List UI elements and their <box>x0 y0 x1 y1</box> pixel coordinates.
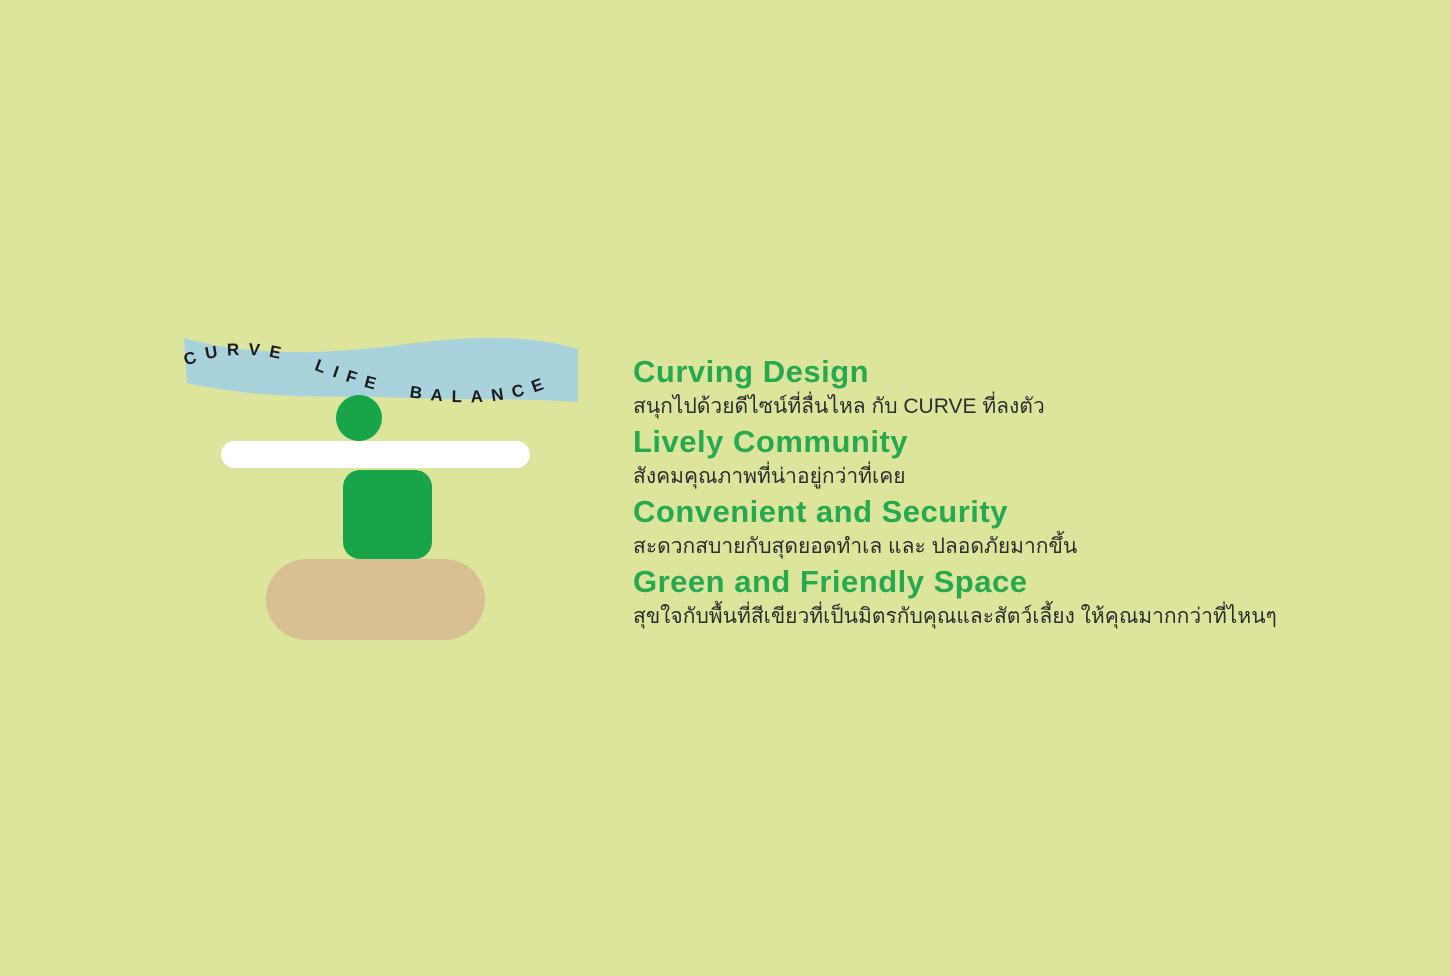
feature-item-convenient-security: Convenient and Security สะดวกสบายกับสุดย… <box>633 492 1353 562</box>
feature-title: Convenient and Security <box>633 492 1353 532</box>
feature-title: Lively Community <box>633 422 1353 462</box>
feature-subtitle: สนุกไปด้วยดีไซน์ที่ลื่นไหล กับ CURVE ที่… <box>633 392 1353 422</box>
figure-balance-bar <box>221 441 530 468</box>
figure-head-circle <box>336 395 382 441</box>
figure-base-pill <box>266 559 485 640</box>
feature-subtitle: สุขใจกับพื้นที่สีเขียวที่เป็นมิตรกับคุณแ… <box>633 602 1353 632</box>
feature-title: Curving Design <box>633 352 1353 392</box>
poster-canvas: CURVE LIFE BALANCE Curving Design สนุกไป… <box>0 0 1450 976</box>
feature-item-curving-design: Curving Design สนุกไปด้วยดีไซน์ที่ลื่นไห… <box>633 352 1353 422</box>
figure-body-square <box>343 470 432 559</box>
feature-title: Green and Friendly Space <box>633 562 1353 602</box>
feature-subtitle: สังคมคุณภาพที่น่าอยู่กว่าที่เคย <box>633 462 1353 492</box>
curve-life-balance-ribbon: CURVE LIFE BALANCE <box>160 316 620 426</box>
feature-item-lively-community: Lively Community สังคมคุณภาพที่น่าอยู่กว… <box>633 422 1353 492</box>
feature-subtitle: สะดวกสบายกับสุดยอดทำเล และ ปลอดภัยมากขึ้… <box>633 532 1353 562</box>
feature-list: Curving Design สนุกไปด้วยดีไซน์ที่ลื่นไห… <box>633 352 1353 632</box>
feature-item-green-friendly-space: Green and Friendly Space สุขใจกับพื้นที่… <box>633 562 1353 632</box>
